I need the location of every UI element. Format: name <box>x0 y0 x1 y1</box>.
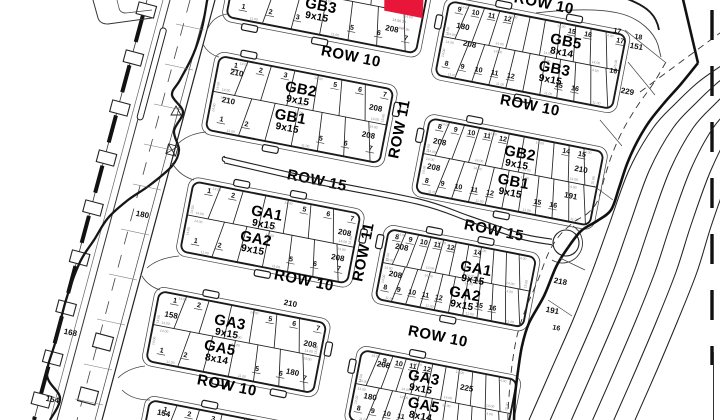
svg-text:11: 11 <box>397 413 406 420</box>
svg-text:17: 17 <box>613 27 622 35</box>
svg-text:16: 16 <box>609 67 618 75</box>
svg-text:3: 3 <box>210 416 215 420</box>
svg-text:16: 16 <box>552 324 561 332</box>
